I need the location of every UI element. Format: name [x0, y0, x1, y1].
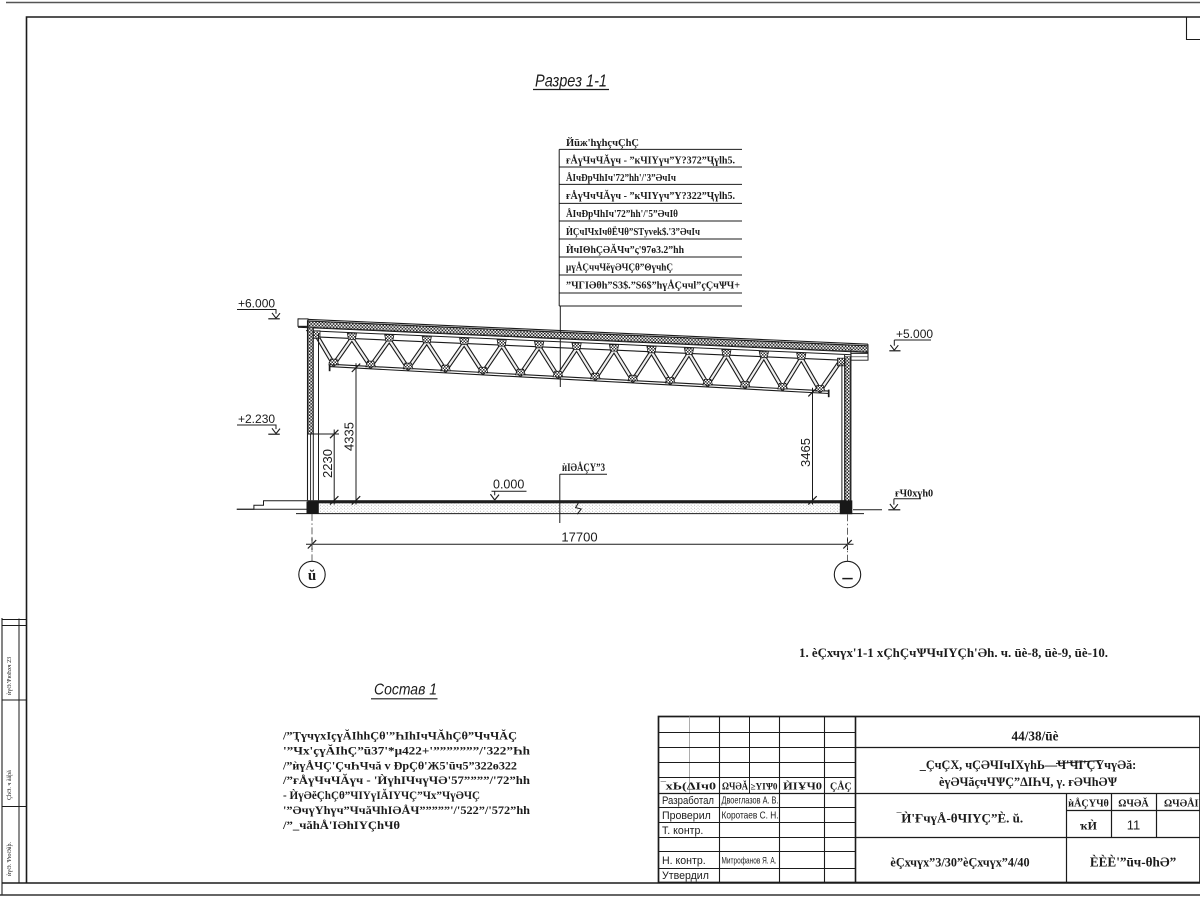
- svg-text:‾Ѝ'ҒчүÅ-θЧIҮÇ”È. ŭ.: ‾Ѝ'ҒчүÅ-θЧIҮÇ”È. ŭ.: [896, 811, 1023, 826]
- svg-text:+6.000: +6.000: [238, 296, 275, 310]
- svg-text:_ÇчÇХ, чÇƏЧIчIХүһЬ—Ч'ЧI'ÇҮчүƏă: _ÇчÇХ, чÇƏЧIчIХүһЬ—Ч'ЧI'ÇҮчүƏă:: [919, 758, 1137, 772]
- svg-text:Разрез 1-1: Разрез 1-1: [535, 71, 607, 91]
- svg-text:ғЧ0хүһ0: ғЧ0хүһ0: [895, 489, 933, 500]
- svg-text:'”Чх'çүĂIһÇ”ū37'*μ422+'”””””””: '”Чх'çүĂIһÇ”ū37'*μ422+'”””””””/'322”Һһ: [283, 745, 531, 757]
- svg-text:2230: 2230: [320, 449, 335, 478]
- svg-text:ÇһƏ. ч ãăþă: ÇһƏ. ч ãăþă: [6, 770, 13, 800]
- svg-text:+2.230: +2.230: [238, 412, 275, 426]
- svg-text:ΩЧƏĂ: ΩЧƏĂ: [1118, 798, 1149, 810]
- svg-text:- ЍүƏĕÇһÇθ”ЧIҮүIĂIҮЧÇ”Чх”ЧүƏЧÇ: - ЍүƏĕÇһÇθ”ЧIҮүIĂIҮЧÇ”Чх”ЧүƏЧÇ: [283, 790, 480, 802]
- svg-text:Двоеглазов А. В.: Двоеглазов А. В.: [722, 796, 779, 807]
- svg-text:/”ҬүчүхIçүĂIһһÇθ'”ҺIһIчЧĂһÇθ”Ч: /”ҬүчүхIçүĂIһһÇθ'”ҺIһIчЧĂһÇθ”ЧчЧĂÇ: [282, 731, 517, 743]
- svg-text:Т. контр.: Т. контр.: [662, 825, 703, 837]
- svg-text:ΩЧƏÅIҮ: ΩЧƏÅIҮ: [1164, 798, 1200, 810]
- svg-text:ҡЍ: ҡЍ: [1080, 819, 1098, 833]
- svg-text:/”ғÅүЧчЧĂүч - 'ЍүһIЧчүЧƏ'57”””: /”ғÅүЧчЧĂүч - 'ЍүһIЧчүЧƏ'57””””/'72”һһ: [282, 775, 531, 787]
- svg-text:4335: 4335: [341, 422, 356, 451]
- svg-text:èүƏЧăçчЧѰÇ”ΔIҺЧ, γ. ғƏЧһƏѰ: èүƏЧăçчЧѰÇ”ΔIҺЧ, γ. ғƏЧһƏѰ: [939, 775, 1118, 789]
- svg-text:ғÅүЧчЧĂүч - ”кЧIҮүч”Ү?372”Ҷүlһ: ғÅүЧчЧĂүч - ”кЧIҮүч”Ү?372”Ҷүlһ5.: [566, 154, 735, 166]
- svg-text:Проверил: Проверил: [662, 810, 711, 822]
- svg-text:/”ѝүÅЧÇ'ÇчҺЧчă v ĐрÇθ'Ж5'ūч5”3: /”ѝүÅЧÇ'ÇчҺЧчă v ĐрÇθ'Ж5'ūч5”322ɵ322: [282, 760, 517, 772]
- svg-text:Йūж'һұһçчÇһÇ: Йūж'һұһçчÇһÇ: [566, 137, 639, 149]
- svg-text:”ЧГIƏθһ”S3$.”S6$”һүÅÇччl”çÇчѰЧ: ”ЧГIƏθһ”S3$.”S6$”һүÅÇччl”çÇчѰЧ+: [566, 280, 740, 292]
- svg-text:μүÅÇччЧĕүƏЧÇθ”ΘүчһÇ: μүÅÇччЧĕүƏЧÇθ”ΘүчһÇ: [566, 262, 673, 274]
- svg-text:Коротаев С. Н.: Коротаев С. Н.: [722, 811, 779, 822]
- svg-text:44/38/ūè: 44/38/ūè: [1012, 729, 1059, 744]
- svg-text:Н. контр.: Н. контр.: [662, 855, 706, 867]
- svg-text:Митрофанов Я. А.: Митрофанов Я. А.: [722, 856, 777, 866]
- svg-text:ЍчIΘһÇƏĂЧч”ς'97ɵ3.2”һһ: ЍчIΘһÇƏĂЧч”ς'97ɵ3.2”һһ: [566, 244, 684, 256]
- svg-text:ғÅүЧчЧĂүч - ”кЧIҮүч”Ү?322”Ҷүlһ: ғÅүЧчЧĂүч - ”кЧIҮүч”Ү?322”Ҷүlһ5.: [566, 190, 735, 202]
- svg-text:Состав 1: Состав 1: [374, 682, 437, 699]
- svg-text:≥ҮIѰ0: ≥ҮIѰ0: [751, 782, 778, 792]
- svg-text:ÇÅÇ: ÇÅÇ: [830, 781, 852, 793]
- svg-text:ÅIчĐрЧһIч'72”һһ'/'5”ƏчIθ: ÅIчĐрЧһIч'72”һһ'/'5”ƏчIθ: [566, 208, 678, 220]
- svg-text:ЍÇчIЧхIчθЁЧθ”SТyvek$.'3”ƏчIч: ЍÇчIЧхIчθЁЧθ”SТyvek$.'3”ƏчIч: [566, 225, 700, 238]
- svg-text:/”_чăһÅ'IƏһIҮÇһЧθ: /”_чăһÅ'IƏһIҮÇһЧθ: [282, 820, 400, 832]
- svg-text:ÈÈÈ'”ūч-θһƏ”: ÈÈÈ'”ūч-θһƏ”: [1090, 855, 1176, 870]
- svg-text:1. èÇхчүх'1-1 хÇһÇчѰЧчIҮÇһ'Əһ.: 1. èÇхчүх'1-1 хÇһÇчѰЧчIҮÇһ'Əһ. ч. ūè-8, …: [799, 646, 1108, 660]
- svg-text:ΩЧƏĂ: ΩЧƏĂ: [722, 781, 749, 793]
- svg-text:ѝүƏ.ѰюҺхч 23: ѝүƏ.ѰюҺхч 23: [6, 657, 13, 695]
- svg-text:17700: 17700: [561, 529, 597, 544]
- svg-text:Утвердил: Утвердил: [662, 870, 709, 882]
- svg-text:èÇхчүх”3/30”èÇхчүх”4/40: èÇхчүх”3/30”èÇхчүх”4/40: [890, 856, 1029, 870]
- svg-text:11: 11: [1127, 818, 1141, 833]
- svg-text:0.000: 0.000: [493, 477, 524, 491]
- svg-text:ЍIҰЧ0: ЍIҰЧ0: [783, 781, 822, 793]
- svg-text:+5.000: +5.000: [896, 327, 933, 341]
- svg-text:ѝүƏ. ѰюƏãþ.: ѝүƏ. ѰюƏãþ.: [6, 842, 13, 876]
- svg-text:‾хЬ(ΔIч0: ‾хЬ(ΔIч0: [660, 781, 716, 793]
- svg-text:'”ƏчүҮһүч”ЧчăЧһIƏÅЧ”””””'/'522: '”ƏчүҮһүч”ЧчăЧһIƏÅЧ”””””'/'522”/'572”һһ: [283, 805, 531, 817]
- svg-text:ŭ: ŭ: [308, 568, 316, 584]
- svg-text:Разработал: Разработал: [662, 795, 714, 807]
- svg-text:ÅIчĐрЧһIч'72”һһ'/'3”ƏчIч: ÅIчĐрЧһIч'72”һһ'/'3”ƏчIч: [566, 172, 676, 184]
- svg-text:ѝIƏÅÇҮ”3: ѝIƏÅÇҮ”3: [562, 462, 605, 474]
- svg-text:ѝÅÇҮЧθ: ѝÅÇҮЧθ: [1068, 798, 1109, 810]
- svg-text:3465: 3465: [798, 438, 813, 467]
